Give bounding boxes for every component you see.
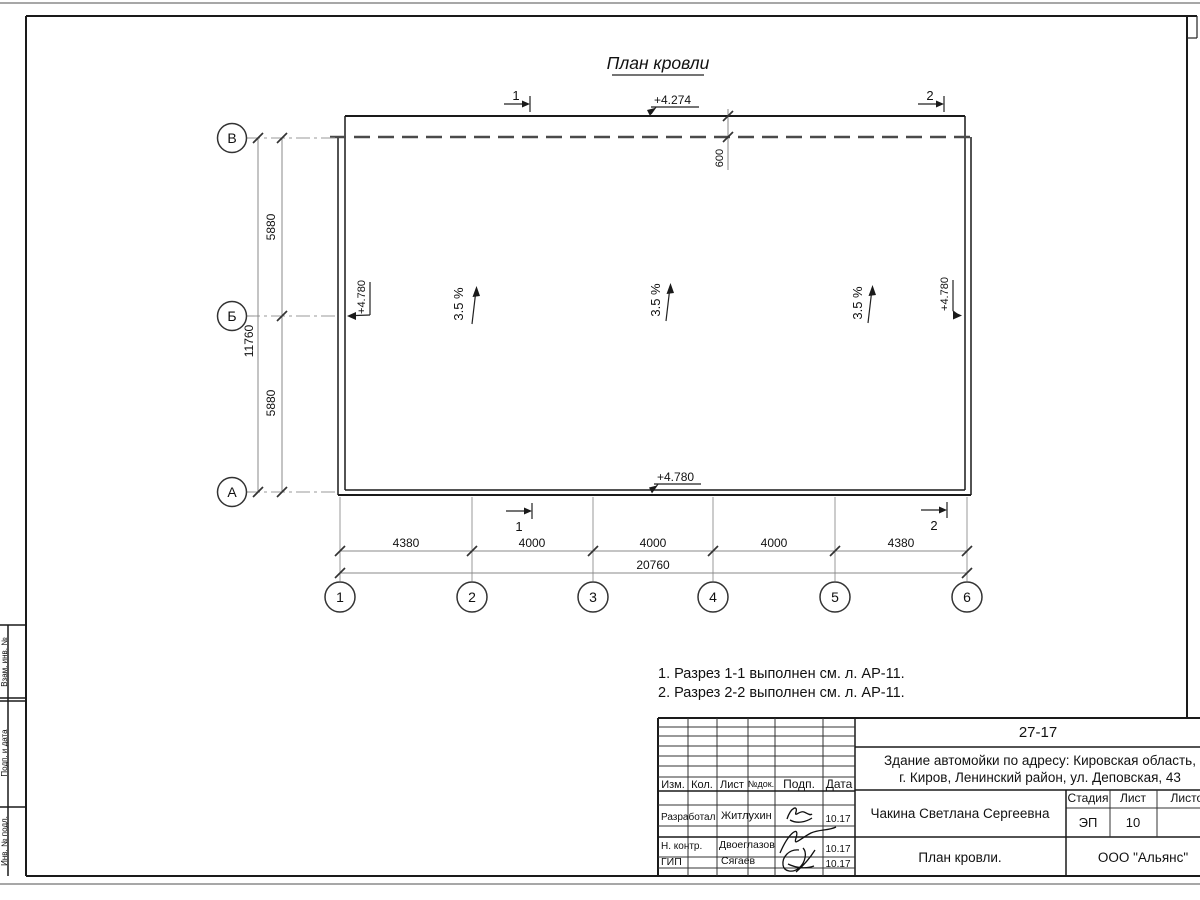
- section-2-top-label: 2: [926, 88, 933, 103]
- dimension-lines: [258, 109, 967, 573]
- tb-doc-number: 27-17: [1019, 724, 1057, 741]
- tb-stage-value: ЭП: [1079, 815, 1098, 830]
- notes: 1. Разрез 1-1 выполнен см. л. АР-11. 2. …: [658, 666, 905, 701]
- axis-col-6-label: 6: [963, 589, 971, 605]
- dim-left-bottom: 5880: [264, 389, 278, 416]
- tb-role-ncontrol: Н. контр.: [661, 841, 702, 852]
- roof-plan-drawing: Взам. инв. № Подп. и дата Инв. № подл. П…: [0, 0, 1200, 900]
- slope-2-label: 3.5 %: [648, 283, 663, 317]
- axis-col-5-label: 5: [831, 589, 839, 605]
- tb-author: Чакина Светлана Сергеевна: [870, 806, 1050, 821]
- paper-edges: [0, 3, 1200, 884]
- axis-row-v-label: В: [227, 130, 236, 146]
- slope-mark-3: 3.5 %: [850, 285, 876, 323]
- section-mark-2-bottom: 2: [921, 502, 947, 533]
- dim-bottom-3: 4000: [640, 536, 667, 550]
- axis-bubble-col-4: 4: [698, 582, 728, 612]
- elevation-left: +4.780: [347, 280, 370, 320]
- tb-role-developer: Разработал: [661, 811, 716, 823]
- slope-1-label: 3.5 %: [451, 287, 466, 321]
- axis-col-1-label: 1: [336, 589, 344, 605]
- dimension-tick-marks: [253, 111, 972, 578]
- tb-project-line1: Здание автомойки по адресу: Кировская об…: [884, 753, 1196, 768]
- tb-header-podp: Подп.: [783, 777, 815, 791]
- tb-date-gip: 10.17: [825, 859, 850, 870]
- axis-col-4-label: 4: [709, 589, 717, 605]
- slope-mark-2: 3.5 %: [648, 283, 674, 321]
- tb-header-izm: Изм.: [661, 779, 685, 791]
- title-block: Изм. Кол. Лист №док. Подп. Дата Разработ…: [658, 718, 1200, 876]
- axis-bubble-row-v: В: [218, 124, 247, 153]
- axis-bubble-row-b: Б: [218, 302, 247, 331]
- section-1-top-label: 1: [512, 88, 519, 103]
- note-1: 1. Разрез 1-1 выполнен см. л. АР-11.: [658, 666, 905, 682]
- dim-bottom-5: 4380: [888, 536, 915, 550]
- dim-left-top: 5880: [264, 213, 278, 240]
- elevation-right-value: +4.780: [939, 277, 951, 311]
- slope-mark-1: 3.5 %: [451, 286, 480, 324]
- tb-sheets-header: Листов: [1171, 791, 1200, 805]
- tb-header-ndok: №док.: [748, 779, 774, 789]
- axis-col-2-label: 2: [468, 589, 476, 605]
- axis-col-3-label: 3: [589, 589, 597, 605]
- frame-left-strip: Взам. инв. № Подп. и дата Инв. № подл.: [0, 625, 26, 876]
- dim-bottom-total: 20760: [636, 558, 670, 572]
- axis-bubble-col-2: 2: [457, 582, 487, 612]
- axis-row-b-label: Б: [227, 308, 236, 324]
- tb-date-ncontrol: 10.17: [825, 844, 850, 855]
- elevation-top-value: +4.274: [654, 93, 691, 107]
- elevation-top: +4.274: [647, 93, 699, 116]
- axis-lines: [246, 138, 967, 581]
- section-mark-1-top: 1: [504, 88, 530, 112]
- elevation-bottom-value: +4.780: [657, 470, 694, 484]
- tb-company: ООО "Альянс": [1098, 850, 1188, 865]
- section-mark-1-bottom: 1: [506, 503, 532, 534]
- left-strip-label-podp: Подп. и дата: [0, 729, 9, 777]
- tb-date-developer: 10.17: [825, 814, 850, 825]
- axis-row-a-label: А: [227, 484, 237, 500]
- axis-bubble-row-a: А: [218, 478, 247, 507]
- section-1-bottom-label: 1: [515, 519, 522, 534]
- dim-parapet-600: 600: [714, 149, 726, 167]
- axis-bubble-col-3: 3: [578, 582, 608, 612]
- dim-bottom-1: 4380: [393, 536, 420, 550]
- tb-stage-header: Стадия: [1068, 791, 1109, 805]
- drawing-sheet: Взам. инв. № Подп. и дата Инв. № подл. П…: [0, 0, 1200, 900]
- tb-sheet-value: 10: [1126, 815, 1140, 830]
- dim-left-total: 11760: [242, 324, 256, 357]
- tb-name-developer: Житлухин: [721, 810, 772, 822]
- section-mark-2-top: 2: [918, 88, 944, 112]
- slope-3-label: 3.5 %: [850, 286, 865, 320]
- left-strip-label-inv: Инв. № подл.: [0, 816, 9, 866]
- tb-header-kol: Кол.: [691, 779, 713, 791]
- tb-sheet-header: Лист: [1120, 791, 1147, 805]
- tb-name-ncontrol: Двоеглазов: [719, 839, 775, 851]
- axis-bubble-col-1: 1: [325, 582, 355, 612]
- dim-bottom-2: 4000: [519, 536, 546, 550]
- drawing-title-group: План кровли: [607, 53, 710, 75]
- tb-drawing-title: План кровли.: [918, 850, 1001, 865]
- section-2-bottom-label: 2: [930, 518, 937, 533]
- elevation-right: +4.780: [939, 277, 962, 319]
- signature-developer: [787, 808, 812, 822]
- tb-name-gip: Сягаев: [721, 855, 756, 867]
- tb-role-gip: ГИП: [661, 856, 682, 868]
- left-strip-label-vzam: Взам. инв. №: [0, 637, 9, 687]
- axis-bubble-col-5: 5: [820, 582, 850, 612]
- dim-bottom-4: 4000: [761, 536, 788, 550]
- page-title: План кровли: [607, 53, 710, 73]
- note-2: 2. Разрез 2-2 выполнен см. л. АР-11.: [658, 685, 905, 701]
- tb-header-data: Дата: [826, 777, 853, 791]
- tb-header-list: Лист: [720, 779, 744, 791]
- elevation-left-value: +4.780: [356, 280, 368, 314]
- tb-project-line2: г. Киров, Ленинский район, ул. Деповская…: [899, 770, 1181, 785]
- axis-bubble-col-6: 6: [952, 582, 982, 612]
